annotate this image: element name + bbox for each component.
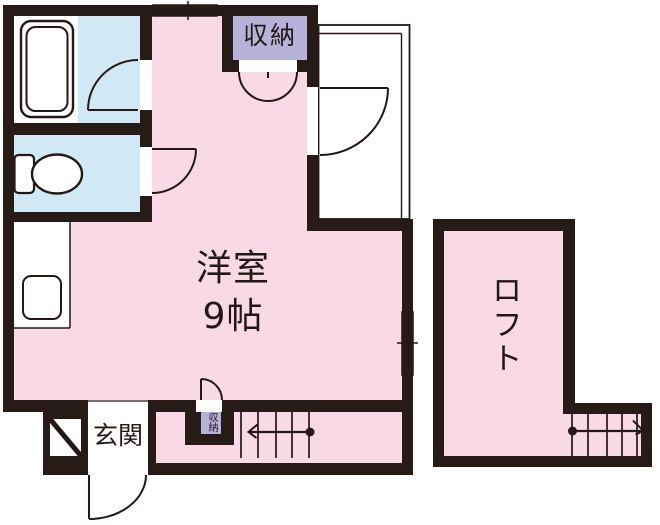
- main-room-label-line1: 洋室: [158, 248, 308, 289]
- main-room-label-line2: 9帖: [158, 296, 308, 337]
- toilet-door-jamb: [140, 147, 152, 196]
- closet-bottom-door-jamb: [196, 400, 222, 412]
- wall-porch-bottom: [307, 219, 405, 231]
- wall-outer-left: [3, 5, 14, 412]
- wall-bath-toilet-divider: [3, 123, 152, 135]
- wall-loft-left: [433, 219, 444, 467]
- closet-bottom-label: 収納: [205, 412, 217, 434]
- bathtub-inner: [27, 27, 68, 111]
- wall-toilet-bottom: [3, 212, 152, 222]
- wall-loft-bottom: [433, 456, 652, 467]
- floorplan-canvas: 洋室 9帖 ロフト 玄関 収納 収納: [0, 0, 660, 525]
- bathroom-door-jamb: [140, 60, 152, 110]
- washer-pan-icon: [23, 276, 61, 319]
- storage-top-door-jamb: [239, 60, 297, 72]
- floor-fills: [14, 16, 641, 463]
- front-door-swing: [89, 475, 146, 519]
- stairs-main-arrow-dot: [306, 428, 315, 437]
- stairs-loft-arrow-dot: [568, 427, 577, 436]
- porch-railing-line: [319, 34, 402, 220]
- porch-outline: [319, 25, 410, 219]
- porch-door-swing: [320, 88, 388, 155]
- toilet-bowl-icon: [32, 155, 82, 194]
- utility-alcove: [14, 222, 70, 328]
- loft-floor-stairs: [563, 414, 641, 456]
- storage-top-label: 収納: [231, 22, 309, 51]
- wall-loft-top: [433, 219, 575, 231]
- wall-loft-right-upper: [563, 219, 575, 414]
- porch: [319, 25, 410, 219]
- loft-label: ロフト: [485, 274, 521, 394]
- front-door-opening: [88, 463, 148, 475]
- porch-door-jamb: [307, 87, 318, 155]
- entrance-label: 玄関: [86, 422, 150, 451]
- shoe-cabinet: [43, 412, 88, 463]
- wall-loft-step: [563, 403, 652, 414]
